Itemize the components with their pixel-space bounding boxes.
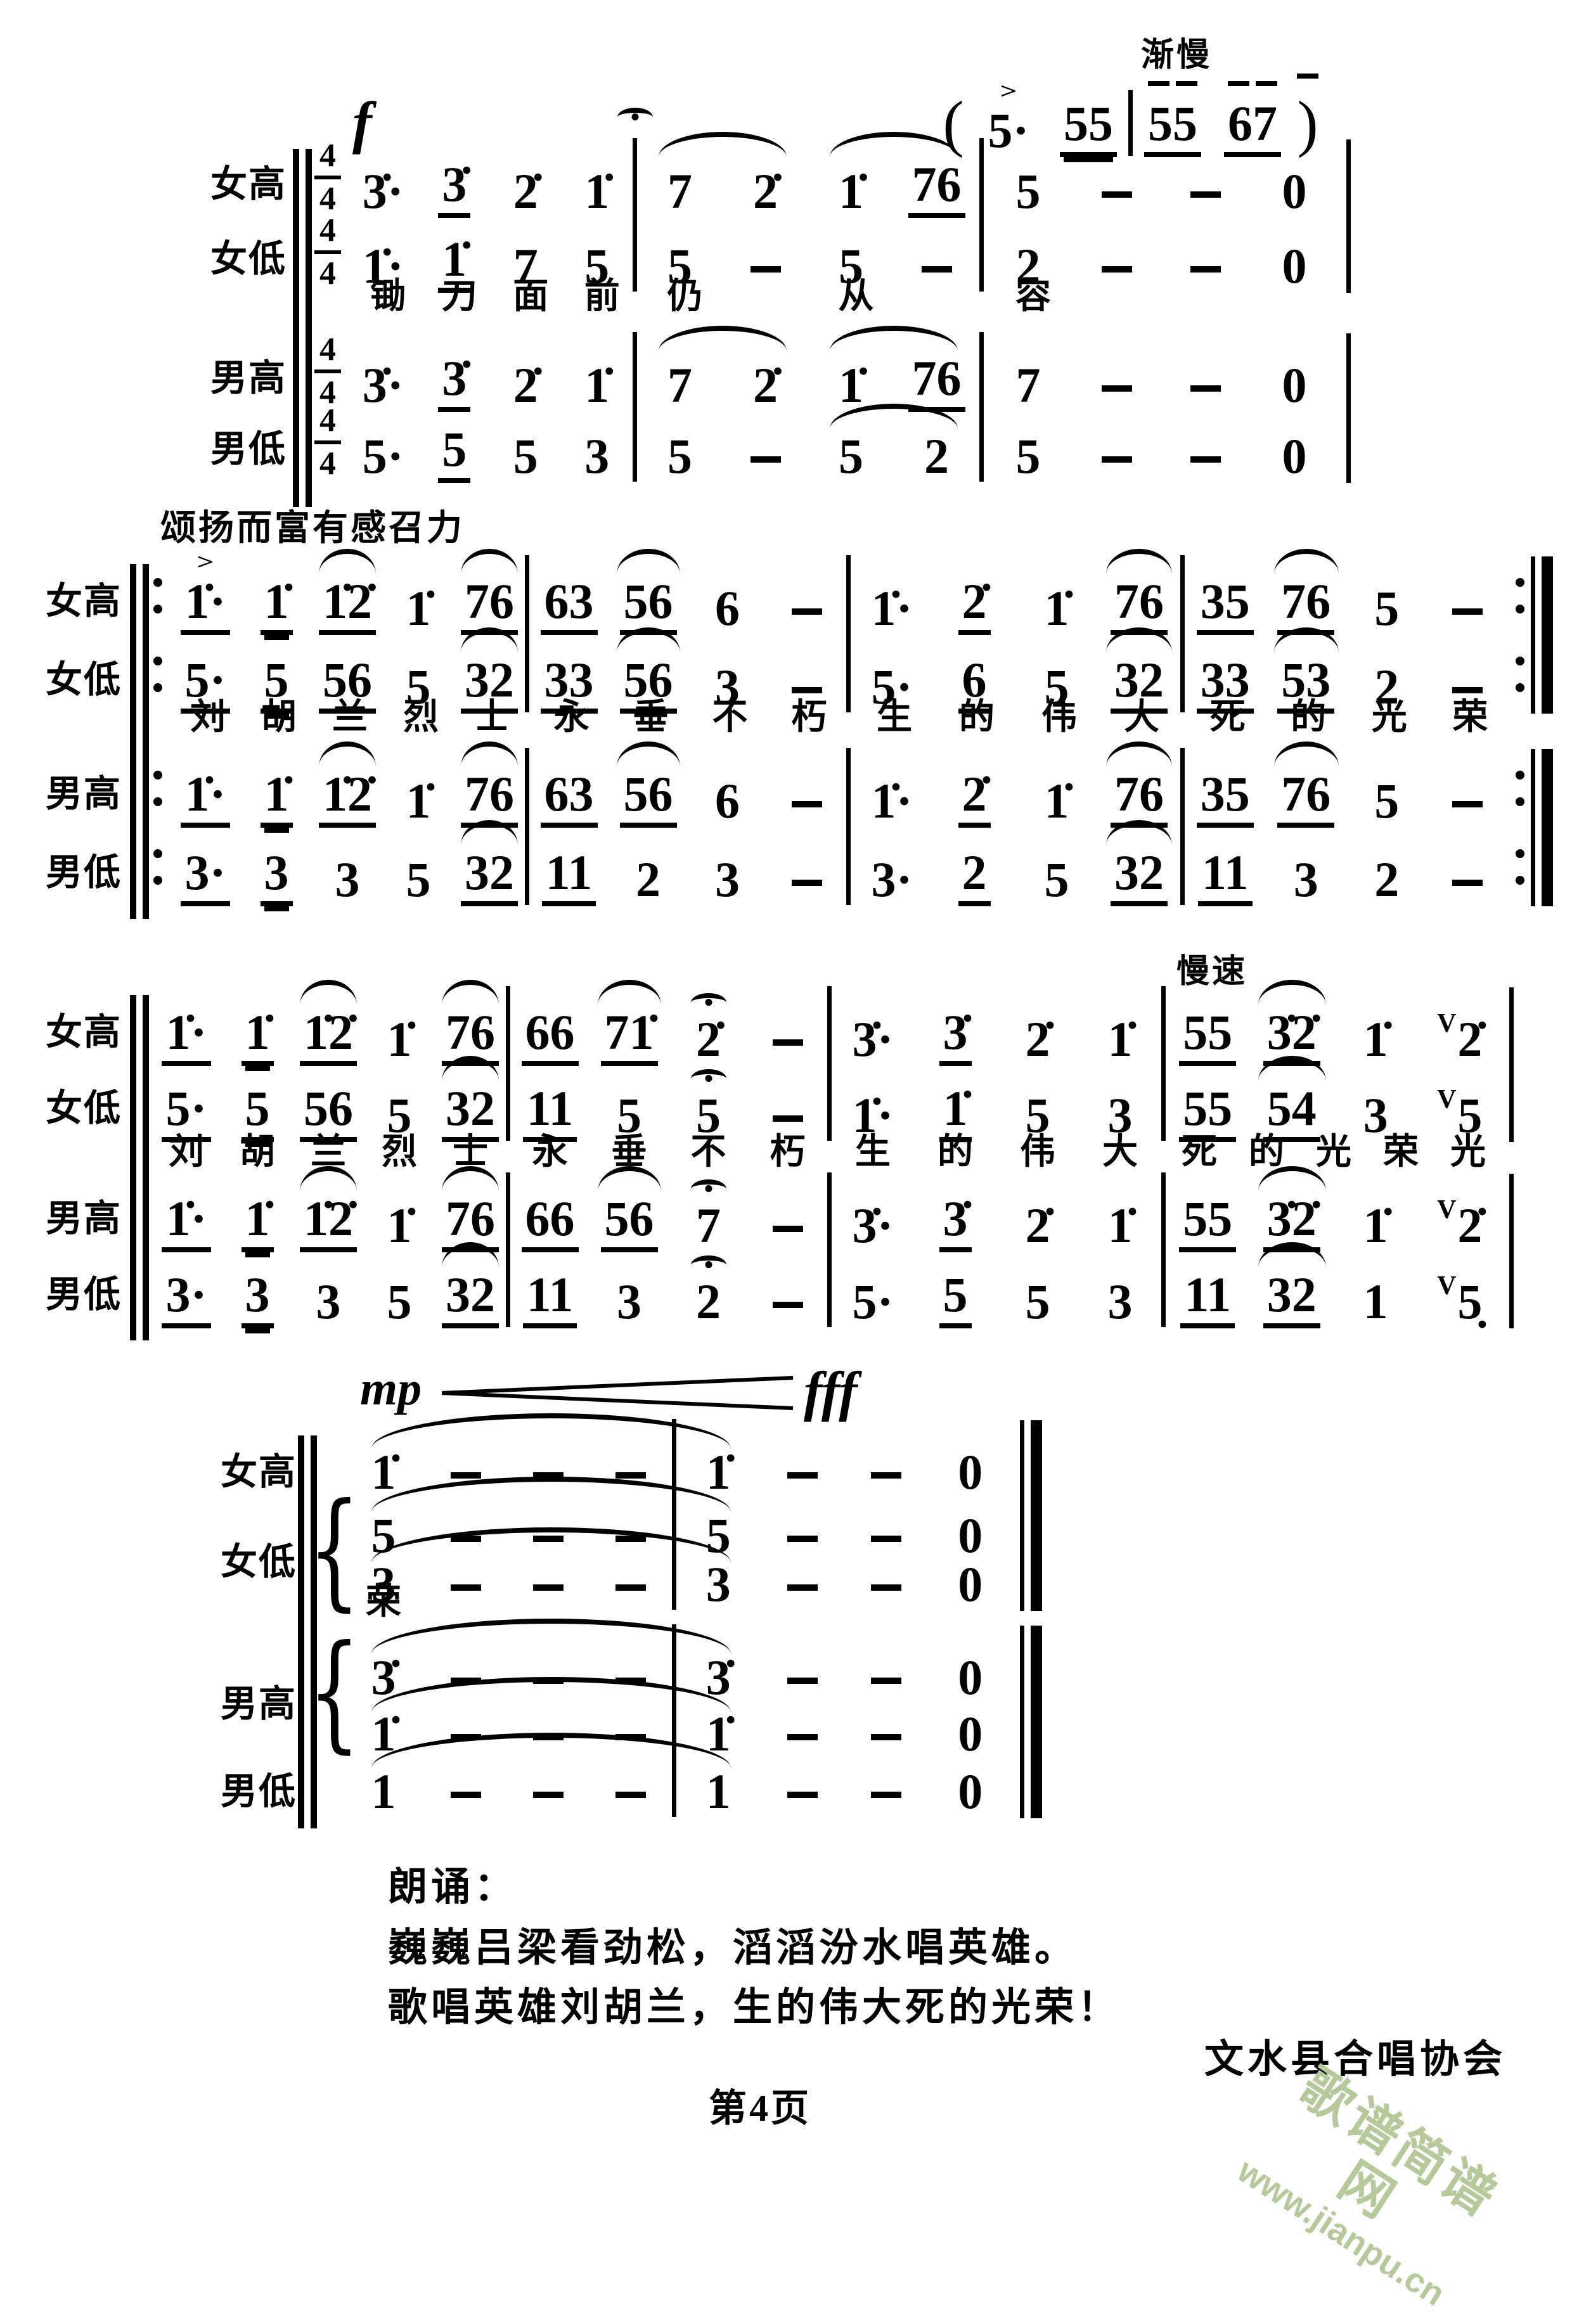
note-token <box>589 1762 672 1818</box>
voice-label: 男低 <box>46 854 122 891</box>
note-token: 67 <box>1213 68 1292 157</box>
glyph: 的 <box>1291 697 1326 738</box>
note-ornaments: > <box>1000 75 1017 105</box>
voice-label: 男低 <box>210 431 287 468</box>
glyph: 5 <box>1041 854 1073 906</box>
note-token: 3· <box>851 825 933 906</box>
glyph: 32 <box>1111 847 1168 906</box>
lyric-syllable: 生 <box>853 697 936 738</box>
glyph: 3 <box>312 1276 345 1328</box>
glyph: 11 <box>542 847 596 906</box>
chord-brace: { <box>308 1487 361 1614</box>
note-ornaments <box>691 1060 726 1089</box>
glyph <box>615 1792 646 1798</box>
note-token: 5 <box>364 1247 435 1328</box>
lyric-syllable <box>844 1582 929 1622</box>
note-token: 3 <box>241 818 312 906</box>
intro-phrase: (>5·555567) <box>938 61 1323 157</box>
note-token: 3 <box>293 1247 364 1328</box>
measure: 1123 <box>529 818 846 906</box>
glyph: 的 <box>959 697 995 738</box>
rallentando-dash-icon <box>1228 81 1249 86</box>
voice-label: 男低 <box>221 1773 297 1810</box>
glyph: 5· <box>984 105 1033 157</box>
system-barline <box>130 995 149 1340</box>
measure: 3·33532 <box>151 1240 506 1328</box>
glyph <box>792 801 822 807</box>
glyph: 士 <box>474 697 510 738</box>
note-token: 63 <box>529 739 609 828</box>
note-token: 11 <box>510 1240 589 1328</box>
glyph: 大 <box>1124 697 1159 738</box>
glyph: 2 <box>632 854 664 906</box>
lyric-syllable: 死 <box>1187 697 1268 738</box>
lyric-syllable: 永 <box>532 697 611 738</box>
glyph <box>1452 687 1483 693</box>
measure: 1132 <box>510 1240 827 1328</box>
measure: 1132 <box>1185 818 1508 906</box>
glyph: 2 <box>1370 854 1403 906</box>
note-token: 5 <box>996 1060 1079 1142</box>
score-row: 110 <box>342 1737 1042 1818</box>
glyph: 11 <box>1180 1269 1235 1328</box>
voice-label: 男高 <box>46 776 122 812</box>
score-row: >1̇·1̇1̇2̇1̇76635661̇·2̇1̇7635765 <box>151 546 1553 635</box>
glyph <box>1190 456 1221 463</box>
note-token: 3̇ <box>914 1164 996 1252</box>
note-token <box>767 851 846 906</box>
note-token: V5̣ <box>1418 1247 1502 1328</box>
note-token: 3 <box>562 401 633 483</box>
note-token: 56 <box>293 1053 364 1142</box>
lyric-syllable: 胡 <box>243 697 314 738</box>
note-token: 3 <box>1266 825 1347 906</box>
note-token: 5 <box>490 401 562 483</box>
glyph <box>773 1039 803 1046</box>
note-token: 66 <box>510 1164 589 1252</box>
glyph: 3· <box>867 854 916 906</box>
measure: 3·2532 <box>851 818 1180 906</box>
lyric-syllable: 容 <box>989 276 1078 317</box>
time-signature: 44 <box>314 214 341 290</box>
rallentando-dash-icon <box>1176 81 1197 86</box>
glyph <box>451 1472 481 1479</box>
lyric-syllable: 的 <box>936 697 1018 738</box>
measure: 553̇2̇1̇V2̇ <box>1166 977 1502 1066</box>
glyph: 3 <box>613 1276 645 1328</box>
note-token: 5· <box>832 1247 914 1328</box>
note-token: 1̇ <box>1015 553 1098 635</box>
glyph: 前 <box>584 276 620 317</box>
note-token: 0 <box>929 1737 1013 1818</box>
lyric-syllable <box>425 1582 507 1622</box>
measure: 1155 <box>510 1053 827 1142</box>
dynamic-fff: fff <box>804 1360 858 1424</box>
note-token: 1̇ <box>222 977 293 1066</box>
voice-label: 女高 <box>221 1454 297 1491</box>
voice-label: 女低 <box>221 1544 297 1581</box>
glyph: 容 <box>1015 276 1051 317</box>
barline <box>525 826 529 905</box>
note-token: 5 <box>364 1060 435 1142</box>
note-token: 1̇ <box>914 1053 996 1142</box>
glyph: 55 <box>1060 98 1117 157</box>
note-token: 5 <box>914 1240 996 1328</box>
note-token: 2 <box>609 825 688 906</box>
barline <box>846 748 851 826</box>
barline <box>979 403 984 482</box>
system-barline <box>130 564 149 919</box>
note-token: 35 <box>1185 546 1266 635</box>
measure: 553̇2̇1̇V2̇ <box>1166 1164 1502 1252</box>
fermata-icon <box>691 1069 726 1088</box>
barline <box>1128 90 1133 156</box>
measure: 5·553 <box>347 394 633 483</box>
glyph: ) <box>1293 90 1322 157</box>
voice-label: 男低 <box>46 1276 122 1313</box>
glyph: 5 <box>664 430 696 483</box>
fermata-icon <box>691 1179 726 1198</box>
glyph <box>922 266 952 273</box>
measure: 生的伟大 <box>853 697 1183 738</box>
lyric-syllable: 荣 <box>1430 697 1511 738</box>
note-token: 11 <box>529 818 609 906</box>
note-token: 5· <box>151 1053 222 1142</box>
lyric-syllable: 光 <box>1349 697 1430 738</box>
glyph <box>1102 191 1132 198</box>
lyric-syllable: 大 <box>1100 697 1183 738</box>
measure: 1̇·1̇1̇2̇1̇76 <box>170 739 525 828</box>
note-token: 3 <box>312 825 383 906</box>
measure: 35765 <box>1185 739 1508 828</box>
note-ornaments: > <box>196 546 214 575</box>
barline <box>1180 826 1185 905</box>
score-row: 锄刀面前仍从容 <box>352 276 1344 317</box>
glyph <box>792 880 822 886</box>
glyph <box>751 266 781 273</box>
glyph <box>1102 456 1132 463</box>
glyph: 光 <box>1372 697 1407 738</box>
lyric-syllable: 从 <box>813 276 899 317</box>
glyph: 11 <box>523 1269 577 1328</box>
glyph: 面 <box>513 276 548 317</box>
glyph: 兰 <box>332 697 368 738</box>
end-barline <box>1516 635 1553 714</box>
glyph: 32 <box>461 847 518 906</box>
lyric-syllable <box>929 1582 1013 1622</box>
note-token: 2 <box>933 818 1015 906</box>
glyph: 5 <box>438 423 470 483</box>
end-barline <box>1020 1532 1042 1611</box>
recitation-line: 巍巍吕梁看劲松，滔滔汾水唱英雄。 <box>388 1915 1078 1972</box>
note-token: 0 <box>1250 401 1339 483</box>
glyph: 5 <box>939 1269 972 1328</box>
glyph: 3 <box>242 1269 274 1328</box>
note-token <box>844 1762 929 1818</box>
glyph <box>871 1472 901 1479</box>
measure: 552 <box>637 401 979 483</box>
note-token: 11 <box>510 1053 589 1142</box>
note-token: 5 <box>1015 825 1098 906</box>
glyph: 3 <box>1104 1276 1137 1328</box>
voice-label: 女高 <box>210 166 287 203</box>
measure: 1̇·2̇1̇76 <box>851 739 1180 828</box>
glyph: 3 <box>1290 854 1322 906</box>
glyph: 荣 <box>366 1582 401 1622</box>
measure: 永垂不朽 <box>532 697 849 738</box>
repeat-dots-icon <box>153 771 162 806</box>
glyph: 0 <box>954 1766 986 1818</box>
note-token: 3 <box>222 1240 293 1328</box>
voice-label: 女低 <box>46 662 122 698</box>
barline <box>506 1249 510 1327</box>
measure: 3·33532 <box>170 818 525 906</box>
note-token: 1 <box>1334 1247 1418 1328</box>
measure: 容 <box>989 276 1344 317</box>
tie-arc <box>371 1527 731 1563</box>
measure: 11321V5̣ <box>1166 1240 1502 1328</box>
note-token <box>1073 427 1161 483</box>
note-token: 3 <box>688 825 767 906</box>
glyph: 5 <box>1012 430 1045 483</box>
note-token: 3· <box>170 818 241 906</box>
glyph <box>1452 880 1483 886</box>
note-token: 3̇ <box>914 977 996 1066</box>
note-token: 3 <box>1079 1247 1161 1328</box>
glyph: 5· <box>848 1276 897 1328</box>
glyph: 朽 <box>792 697 827 738</box>
chord-brace: { <box>308 1629 361 1756</box>
note-token: 5 <box>637 401 723 483</box>
note-token: 35 <box>1185 739 1266 828</box>
note-ornaments <box>1148 68 1197 98</box>
rallentando-dash-icon <box>1256 81 1277 86</box>
barline <box>846 826 851 905</box>
glyph: 3 <box>711 854 744 906</box>
barline <box>1180 555 1185 634</box>
end-barline <box>1346 404 1351 483</box>
glyph: 0 <box>1279 430 1311 483</box>
voice-label: 女低 <box>210 241 287 278</box>
note-token: 1̇ <box>383 746 454 828</box>
note-token: ) <box>1292 61 1323 157</box>
glyph: 2 <box>692 1276 725 1328</box>
score-row: 445·55355250 <box>312 394 1351 483</box>
lyric-syllable <box>1255 276 1344 317</box>
crescendo-hairpin <box>441 1373 796 1413</box>
measure: 3̇·3̇2̇1̇ <box>832 977 1161 1066</box>
lyric-syllable <box>507 1582 589 1622</box>
note-token <box>723 427 808 483</box>
accent-icon: > <box>1000 82 1017 101</box>
note-token: 1̇ <box>241 739 312 828</box>
glyph <box>773 1226 803 1232</box>
measure: 1̇·1̇1̇2̇1̇76 <box>151 1164 506 1252</box>
glyph: 3 <box>332 854 364 906</box>
glyph: 1 <box>1360 1276 1392 1328</box>
end-barline <box>1516 749 1553 828</box>
rallentando-dash-icon <box>1148 81 1169 86</box>
note-token: 3 <box>589 1247 669 1328</box>
lyric-syllable: 前 <box>567 276 638 317</box>
association-credit: 文水县合唱协会 <box>1204 2027 1506 2084</box>
tie-arc <box>659 326 787 351</box>
measure: 仍从 <box>642 276 984 317</box>
glyph: 5 <box>383 1276 416 1328</box>
note-token: 5 <box>984 401 1073 483</box>
note-token: 5 <box>222 1053 293 1142</box>
measure: 5·556532 <box>151 1053 506 1142</box>
glyph: 5 <box>1022 1276 1054 1328</box>
rallentando-dash-icon <box>1297 74 1318 79</box>
score-row: 1̇·1̇1̇2̇1̇76665673̇·3̇2̇1̇553̇2̇1̇V2̇ <box>151 1164 1514 1252</box>
end-barline <box>1509 1063 1514 1142</box>
lyric-syllable: 士 <box>456 697 527 738</box>
watermark: 歌谱简谱网 www.jianpu.cn <box>1216 2046 1528 2324</box>
end-barline <box>1509 1250 1514 1328</box>
score-row: 3·3353211325·55311321V5̣ <box>151 1240 1514 1328</box>
note-token: 66 <box>510 977 589 1066</box>
glyph: 伟 <box>1041 697 1077 738</box>
note-token: >1̇· <box>170 546 241 635</box>
note-token: 5 <box>419 394 491 483</box>
barline <box>525 555 529 634</box>
glyph: 2 <box>920 430 953 483</box>
fermata-icon <box>691 993 726 1012</box>
score-row: 刘胡兰烈士永垂不朽生的伟大死的光荣 <box>172 697 1511 738</box>
glyph: 32 <box>1263 1269 1320 1328</box>
note-token: 6 <box>688 553 767 635</box>
lyric-syllable: 烈 <box>385 697 456 738</box>
breath-mark-icon: V <box>1437 1085 1456 1114</box>
measure: 1̇·2̇1̇76 <box>851 546 1180 635</box>
glyph: 荣 <box>1452 697 1488 738</box>
glyph <box>615 1472 646 1479</box>
glyph <box>751 456 781 463</box>
barline <box>525 748 529 826</box>
lyric-syllable: 的 <box>1268 697 1350 738</box>
measure: 35765 <box>1185 546 1508 635</box>
measure <box>676 1582 1012 1622</box>
repeat-dots-icon <box>1516 849 1524 885</box>
measure: 66567 <box>510 1164 827 1252</box>
measure: 63566 <box>529 546 846 635</box>
note-token: 5· <box>347 401 419 483</box>
note-token: 1̇· <box>851 553 933 635</box>
barline <box>1161 1249 1166 1327</box>
sheet-page: f 渐慢 颂扬而富有感召力 慢速 mp fff 朗诵： 巍巍吕梁看劲松，滔滔汾水… <box>0 0 1572 2178</box>
lyric-syllable: 垂 <box>611 697 690 738</box>
glyph: 5 <box>510 430 542 483</box>
score-row: 1̇·1̇1̇2̇1̇76635661̇·2̇1̇7635765 <box>151 739 1553 828</box>
glyph: 刘 <box>190 697 226 738</box>
glyph: 5 <box>403 854 435 906</box>
glyph <box>1190 191 1221 198</box>
note-token: 5 <box>383 825 454 906</box>
lyric-syllable: 不 <box>690 697 770 738</box>
note-token <box>1427 851 1509 906</box>
glyph: 死 <box>1210 697 1246 738</box>
voice-label: 女高 <box>46 583 122 620</box>
lyric-syllable: 仍 <box>642 276 728 317</box>
barline <box>827 1249 832 1327</box>
dynamic-mp: mp <box>360 1361 422 1416</box>
score-row: 3·3353211233·25321132 <box>151 818 1553 906</box>
recitation-heading: 朗诵： <box>388 1854 517 1911</box>
note-token <box>761 1762 845 1818</box>
lyric-syllable <box>761 1582 845 1622</box>
glyph: 5 <box>835 430 867 483</box>
measure: 1̇·1̇1̇2̇1̇76 <box>151 977 506 1066</box>
repeat-dots-icon <box>153 578 162 613</box>
glyph: 3 <box>261 847 293 906</box>
breath-mark-icon: V <box>1437 1271 1456 1300</box>
breath-mark-icon: V <box>1437 1009 1456 1038</box>
glyph: 锄 <box>370 276 406 317</box>
end-barline <box>1020 1740 1042 1818</box>
glyph <box>1452 608 1483 615</box>
accent-icon: > <box>196 553 214 571</box>
lyric-syllable <box>1078 276 1166 317</box>
lyric-syllable <box>676 1582 761 1622</box>
barline <box>633 403 637 482</box>
glyph <box>871 1792 901 1798</box>
glyph: 3· <box>181 847 229 906</box>
glyph <box>533 1792 564 1798</box>
note-token: 1̇ <box>1015 746 1098 828</box>
voice-label: 男高 <box>46 1200 122 1237</box>
measure: >1̇·1̇1̇2̇1̇76 <box>170 546 525 635</box>
note-token: 5 <box>1346 553 1427 635</box>
glyph: 3 <box>581 430 613 483</box>
measure: 死的光荣 <box>1187 697 1511 738</box>
score-row: 荣 <box>342 1582 1012 1622</box>
glyph <box>773 1302 803 1308</box>
note-token: 11 <box>1185 818 1266 906</box>
glyph: 烈 <box>403 697 439 738</box>
measure: 刘胡兰烈士 <box>172 697 527 738</box>
measure: 6671̇2̇ <box>510 977 827 1066</box>
note-token <box>1161 427 1250 483</box>
barline <box>1180 748 1185 826</box>
note-token: 1̇· <box>170 739 241 828</box>
lyric-syllable: 朽 <box>770 697 849 738</box>
glyph <box>451 1792 481 1798</box>
glyph <box>1190 385 1221 392</box>
glyph: 生 <box>877 697 912 738</box>
barline <box>1161 1062 1166 1141</box>
measure: 63566 <box>529 739 846 828</box>
score-row: 5·55653211551̇·1̇5355543V5 <box>151 1053 1514 1142</box>
glyph: 55 <box>1144 98 1201 157</box>
repeat-dots-icon <box>1516 771 1524 806</box>
glyph: 32 <box>442 1269 499 1328</box>
note-token: 5 <box>589 1060 669 1142</box>
fermata-icon <box>691 1255 726 1274</box>
barline <box>827 1062 832 1141</box>
lyric-syllable: 面 <box>495 276 567 317</box>
note-token: ( <box>938 61 969 157</box>
lyric-syllable: 兰 <box>314 697 385 738</box>
measure: 55543V5 <box>1166 1053 1502 1142</box>
note-token: 3· <box>151 1240 222 1328</box>
voice-label: 女高 <box>46 1014 122 1051</box>
note-token: 1̇ <box>383 553 454 635</box>
note-token: 2 <box>1346 825 1427 906</box>
note-token: 1̇ <box>241 546 312 635</box>
measure: 1̇·1̇53 <box>832 1053 1161 1142</box>
glyph: 仍 <box>667 276 703 317</box>
